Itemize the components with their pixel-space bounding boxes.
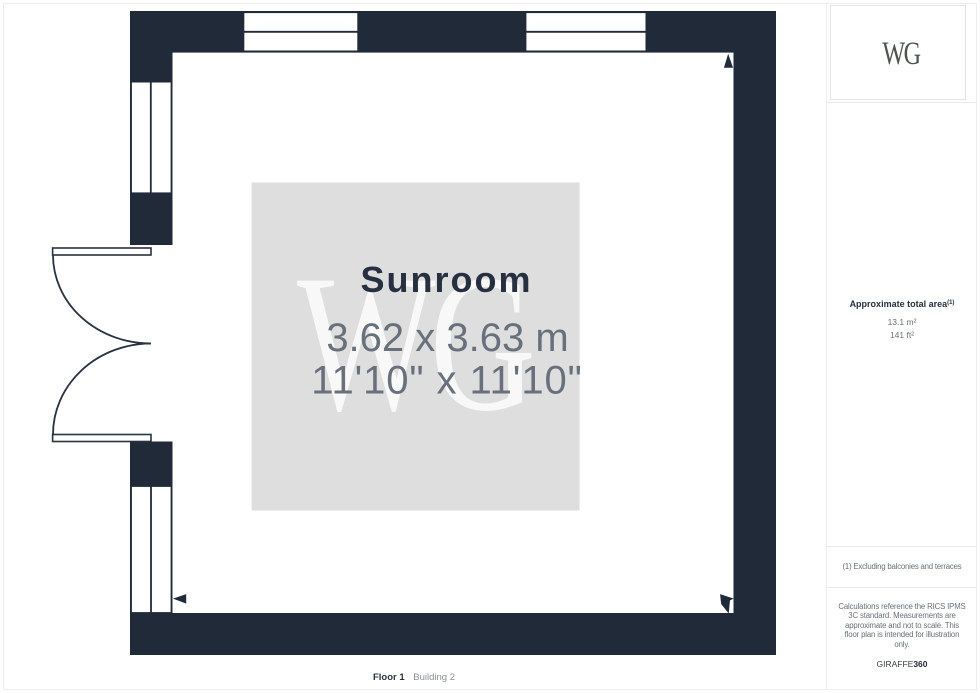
svg-text:Sunroom: Sunroom [361, 259, 533, 300]
svg-text:WG: WG [882, 35, 920, 72]
svg-text:11'10" x 11'10": 11'10" x 11'10" [311, 359, 582, 403]
svg-text:3.62 x 3.63 m: 3.62 x 3.63 m [326, 316, 568, 360]
